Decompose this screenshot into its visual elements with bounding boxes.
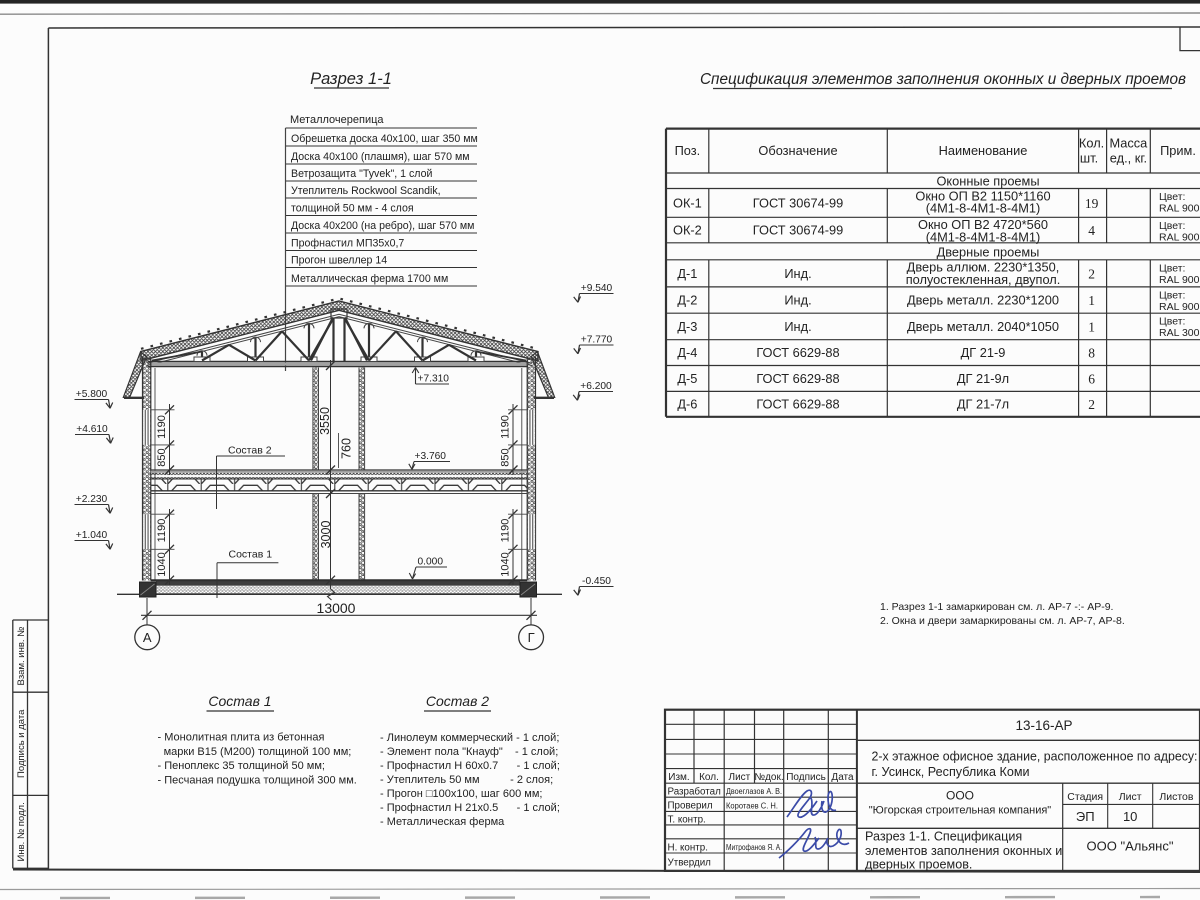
svg-text:Изм.: Изм. [668, 772, 689, 783]
svg-text:Инд.: Инд. [784, 266, 811, 281]
svg-text:6: 6 [1088, 371, 1095, 386]
svg-text:марки В15 (М200) толщиной 100: марки В15 (М200) толщиной 100 мм; [158, 746, 352, 758]
svg-text:10: 10 [1123, 809, 1137, 824]
svg-text:№док.: №док. [754, 772, 783, 783]
svg-text:- Профнастил Н 21х0.5 - 1: - Профнастил Н 21х0.5 - 1 слой; [380, 802, 560, 814]
svg-text:ГОСТ 6629-88: ГОСТ 6629-88 [756, 345, 839, 360]
svg-text:шт.: шт. [1080, 151, 1098, 166]
svg-text:Утеплитель Rockwool Scandik,: Утеплитель Rockwool Scandik, [291, 185, 441, 197]
svg-text:1190: 1190 [500, 519, 512, 543]
svg-text:Митрофанов Я. А.: Митрофанов Я. А. [726, 842, 782, 852]
svg-text:Состав 2: Состав 2 [228, 445, 272, 457]
svg-text:Инд.: Инд. [784, 293, 811, 308]
svg-text:Наименование: Наименование [939, 143, 1028, 158]
svg-text:Утвердил: Утвердил [668, 858, 712, 869]
svg-text:+4.610: +4.610 [76, 424, 108, 435]
svg-text:+6.200: +6.200 [580, 381, 612, 392]
svg-text:Н. контр.: Н. контр. [668, 842, 708, 853]
svg-text:"Югорская строительная компани: "Югорская строительная компания" [869, 805, 1052, 817]
svg-text:ГОСТ 6629-88: ГОСТ 6629-88 [756, 397, 839, 412]
svg-text:Д-3: Д-3 [677, 319, 697, 334]
svg-text:RAL 9003: RAL 9003 [1159, 231, 1200, 243]
svg-text:1040: 1040 [500, 552, 512, 576]
svg-text:RAL 3003: RAL 3003 [1159, 327, 1200, 339]
svg-text:850: 850 [500, 448, 512, 466]
svg-text:Цвет:: Цвет: [1159, 289, 1185, 301]
svg-text:- Элемент пола "Кнауф" - 1: - Элемент пола "Кнауф" - 1 слой; [380, 746, 558, 758]
svg-text:2-х этажное офисное здание, ра: 2-х этажное офисное здание, расположенно… [872, 750, 1198, 764]
svg-text:- Линолеум коммерческий - 1 сл: - Линолеум коммерческий - 1 слой; [380, 732, 559, 744]
svg-text:1: 1 [1088, 319, 1095, 334]
svg-text:13-16-АР: 13-16-АР [1015, 718, 1072, 733]
svg-text:RAL 9003: RAL 9003 [1159, 274, 1200, 286]
svg-text:+3.760: +3.760 [415, 451, 447, 462]
svg-text:850: 850 [156, 448, 168, 466]
svg-text:+7.770: +7.770 [581, 335, 613, 346]
svg-text:Инд.: Инд. [784, 319, 811, 334]
svg-text:ЭП: ЭП [1076, 809, 1095, 824]
svg-text:Доска 40х100 (плашмя), шаг 570: Доска 40х100 (плашмя), шаг 570 мм [291, 151, 470, 163]
svg-text:1190: 1190 [500, 415, 512, 439]
svg-text:- Пеноплекс 35 толщиной 50 мм;: - Пеноплекс 35 толщиной 50 мм; [158, 760, 325, 772]
svg-text:- Монолитная плита из бетонная: - Монолитная плита из бетонная [158, 732, 325, 744]
svg-text:Лист: Лист [1119, 791, 1142, 803]
svg-text:Состав 1: Состав 1 [208, 693, 271, 709]
svg-text:+9.540: +9.540 [581, 283, 613, 294]
svg-text:13000: 13000 [317, 600, 356, 616]
svg-text:Листов: Листов [1159, 791, 1194, 803]
svg-text:ед., кг.: ед., кг. [1110, 151, 1147, 166]
svg-text:ДГ 21-7л: ДГ 21-7л [957, 397, 1009, 412]
svg-text:(4М1-8-4М1-8-4М1): (4М1-8-4М1-8-4М1) [926, 230, 1041, 245]
svg-text:Масса: Масса [1109, 136, 1148, 151]
svg-text:Доска 40х200 (на ребро), шаг 5: Доска 40х200 (на ребро), шаг 570 мм [291, 220, 474, 232]
svg-text:Т. контр.: Т. контр. [668, 814, 706, 825]
svg-text:Взам. инв. №: Взам. инв. № [16, 627, 27, 686]
svg-text:- Металлическая ферма: - Металлическая ферма [380, 816, 505, 828]
svg-text:ОК-1: ОК-1 [673, 195, 702, 210]
svg-text:760: 760 [340, 438, 354, 459]
svg-text:ДГ 21-9: ДГ 21-9 [961, 345, 1006, 360]
svg-text:Дверь металл. 2040*1050: Дверь металл. 2040*1050 [907, 319, 1059, 334]
svg-text:2: 2 [1088, 397, 1095, 412]
svg-text:RAL 9003: RAL 9003 [1159, 301, 1200, 313]
svg-text:+1.040: +1.040 [76, 530, 108, 541]
svg-text:А: А [143, 630, 152, 645]
svg-text:Д-6: Д-6 [677, 397, 697, 412]
svg-text:Г: Г [528, 630, 535, 645]
svg-text:ДГ 21-9л: ДГ 21-9л [957, 371, 1009, 386]
svg-text:Дата: Дата [831, 772, 854, 783]
svg-text:8: 8 [1088, 346, 1095, 361]
svg-text:ООО "Альянс": ООО "Альянс" [1087, 839, 1174, 854]
svg-text:Стадия: Стадия [1067, 791, 1103, 803]
svg-text:Спецификация элементов заполне: Спецификация элементов заполнения оконны… [700, 71, 1186, 88]
svg-text:Металлочерепица: Металлочерепица [290, 114, 384, 126]
svg-text:- Песчаная подушка толщиной 30: - Песчаная подушка толщиной 300 мм. [158, 774, 357, 786]
svg-text:Двоеглазов А. В.: Двоеглазов А. В. [726, 786, 782, 796]
svg-text:полуостекленная, двупол.: полуостекленная, двупол. [906, 272, 1061, 287]
svg-text:Инв. № подл.: Инв. № подл. [16, 802, 27, 861]
svg-text:ОК-2: ОК-2 [673, 223, 702, 238]
svg-text:- Утеплитель 50 мм -: - Утеплитель 50 мм - 2 слоя; [380, 774, 553, 786]
svg-text:Дверные проемы: Дверные проемы [937, 244, 1040, 259]
svg-text:Кол.: Кол. [699, 772, 719, 783]
svg-text:ГОСТ 6629-88: ГОСТ 6629-88 [756, 371, 839, 386]
svg-text:-0.450: -0.450 [582, 576, 611, 587]
svg-text:Разработал: Разработал [668, 786, 722, 797]
svg-text:Оконные проемы: Оконные проемы [936, 174, 1039, 189]
svg-text:+5.800: +5.800 [76, 389, 108, 400]
svg-text:2. Окна и двери замаркированы: 2. Окна и двери замаркированы см. л. АР-… [880, 615, 1125, 627]
svg-text:+7.310: +7.310 [418, 374, 450, 385]
svg-text:Металлическая ферма 1700 мм: Металлическая ферма 1700 мм [291, 273, 448, 285]
svg-text:0.000: 0.000 [418, 557, 444, 568]
svg-text:Поз.: Поз. [675, 143, 701, 158]
svg-text:Состав 2: Состав 2 [426, 693, 489, 709]
svg-text:Разрез 1-1: Разрез 1-1 [310, 70, 392, 88]
svg-text:дверных проемов.: дверных проемов. [865, 858, 972, 872]
svg-text:Д-2: Д-2 [677, 293, 697, 308]
svg-text:г. Усинск, Республика Коми: г. Усинск, Республика Коми [872, 765, 1030, 779]
svg-text:1: 1 [1088, 293, 1095, 308]
svg-text:Цвет:: Цвет: [1159, 220, 1185, 232]
svg-text:Цвет:: Цвет: [1159, 262, 1185, 274]
svg-text:- Профнастил Н 60х0.7 - 1: - Профнастил Н 60х0.7 - 1 слой; [380, 760, 560, 772]
svg-text:Д-5: Д-5 [677, 371, 697, 386]
svg-text:(4М1-8-4М1-8-4М1): (4М1-8-4М1-8-4М1) [926, 201, 1041, 216]
svg-text:2: 2 [1088, 266, 1095, 281]
svg-text:Подпись и дата: Подпись и дата [16, 709, 27, 778]
svg-text:3550: 3550 [318, 407, 332, 435]
svg-text:Ветрозащита "Tyvek", 1 слой: Ветрозащита "Tyvek", 1 слой [291, 168, 432, 180]
svg-text:Кол.: Кол. [1079, 136, 1104, 151]
svg-text:ООО: ООО [946, 789, 974, 803]
svg-text:1190: 1190 [156, 519, 168, 543]
svg-text:+2.230: +2.230 [76, 494, 108, 505]
svg-text:Подпись: Подпись [786, 772, 826, 783]
svg-text:4: 4 [1088, 223, 1095, 238]
svg-text:Обрешетка доска 40х100, шаг 35: Обрешетка доска 40х100, шаг 350 мм [291, 133, 478, 145]
svg-text:3000: 3000 [319, 521, 333, 549]
svg-text:ГОСТ 30674-99: ГОСТ 30674-99 [753, 223, 843, 238]
svg-text:RAL 9003: RAL 9003 [1159, 203, 1200, 215]
svg-text:Д-1: Д-1 [677, 266, 697, 281]
svg-text:ГОСТ 30674-99: ГОСТ 30674-99 [753, 195, 843, 210]
svg-text:1040: 1040 [156, 552, 168, 576]
svg-text:Д-4: Д-4 [677, 345, 697, 360]
svg-text:Разрез 1-1. Спецификация: Разрез 1-1. Спецификация [865, 830, 1022, 844]
svg-text:Проверил: Проверил [668, 801, 713, 812]
svg-text:1190: 1190 [156, 415, 168, 439]
svg-text:Состав 1: Состав 1 [229, 549, 273, 561]
svg-text:Лист: Лист [729, 772, 751, 783]
svg-text:Цвет:: Цвет: [1159, 191, 1185, 203]
svg-text:Прим.: Прим. [1160, 143, 1196, 158]
svg-text:Прогон швеллер 14: Прогон швеллер 14 [291, 255, 387, 267]
svg-text:Профнастил МП35х0,7: Профнастил МП35х0,7 [291, 238, 404, 250]
svg-text:1. Разрез 1-1 замаркирован см.: 1. Разрез 1-1 замаркирован см. л. АР-7 -… [880, 601, 1113, 613]
svg-text:Цвет:: Цвет: [1159, 316, 1185, 328]
svg-text:19: 19 [1085, 196, 1099, 211]
svg-text:Коротаев С. Н.: Коротаев С. Н. [726, 800, 778, 810]
svg-text:- Прогон □100х100, шаг 600 мм;: - Прогон □100х100, шаг 600 мм; [380, 788, 542, 800]
svg-text:Обозначение: Обозначение [758, 143, 837, 158]
svg-text:Дверь металл. 2230*1200: Дверь металл. 2230*1200 [907, 293, 1059, 308]
svg-text:толщиной 50 мм - 4 слоя: толщиной 50 мм - 4 слоя [291, 203, 414, 215]
svg-text:элементов заполнения оконных и: элементов заполнения оконных и [865, 844, 1062, 858]
